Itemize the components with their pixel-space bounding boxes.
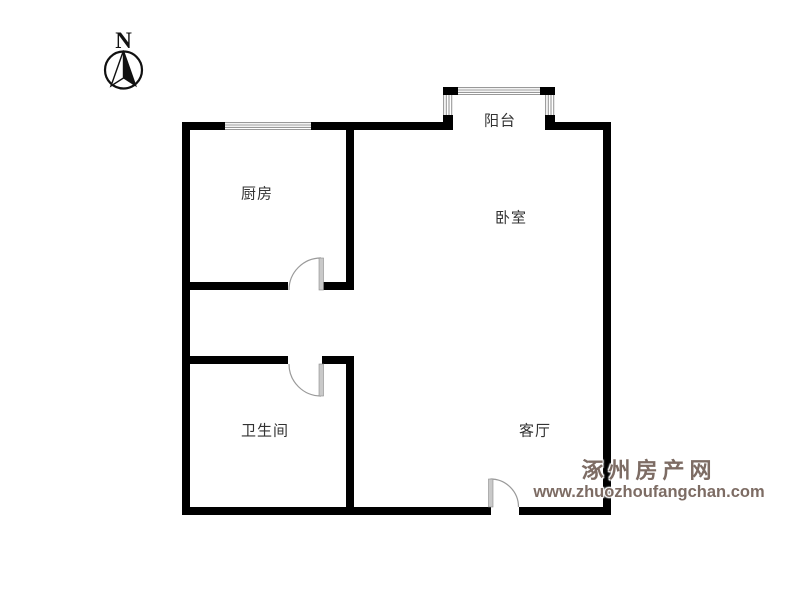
wall-top-mid-segment <box>311 122 453 130</box>
living-room-label: 客厅 <box>519 420 551 441</box>
bedroom-label: 卧室 <box>495 207 527 228</box>
balcony-pillar-window-left <box>443 95 453 115</box>
wall-divider-lower <box>346 356 354 507</box>
balcony-corner-right <box>545 115 555 130</box>
balcony-corner-left <box>443 115 453 130</box>
compass-icon: N <box>105 28 142 89</box>
wall-right <box>603 122 611 515</box>
wall-bathroom-top-right <box>322 356 354 364</box>
wall-left <box>182 122 190 515</box>
wall-divider-upper <box>346 130 354 290</box>
wall-bathroom-top-left <box>190 356 288 364</box>
wall-bottom-left-segment <box>182 507 491 515</box>
outer-walls <box>182 122 611 515</box>
bathroom-door-icon <box>289 364 324 396</box>
balcony-top-cap-left <box>443 87 458 95</box>
wall-kitchen-bottom-right <box>322 282 354 290</box>
balcony-pillar-window-right <box>545 95 555 115</box>
kitchen-label: 厨房 <box>241 183 273 204</box>
kitchen-door-icon <box>289 258 324 290</box>
floorplan-image: N <box>0 0 800 600</box>
kitchen-window-icon <box>225 122 311 130</box>
balcony-top-cap-right <box>540 87 555 95</box>
floorplan-drawing: N <box>0 0 800 600</box>
compass-north-label: N <box>115 28 132 53</box>
wall-kitchen-bottom-left <box>190 282 288 290</box>
balcony-label: 阳台 <box>484 110 516 131</box>
balcony-window-icon <box>458 87 540 95</box>
wall-top-left-segment <box>182 122 225 130</box>
bathroom-label: 卫生间 <box>241 420 289 441</box>
wall-bottom-right-segment <box>519 507 611 515</box>
entry-door-icon <box>489 479 519 507</box>
